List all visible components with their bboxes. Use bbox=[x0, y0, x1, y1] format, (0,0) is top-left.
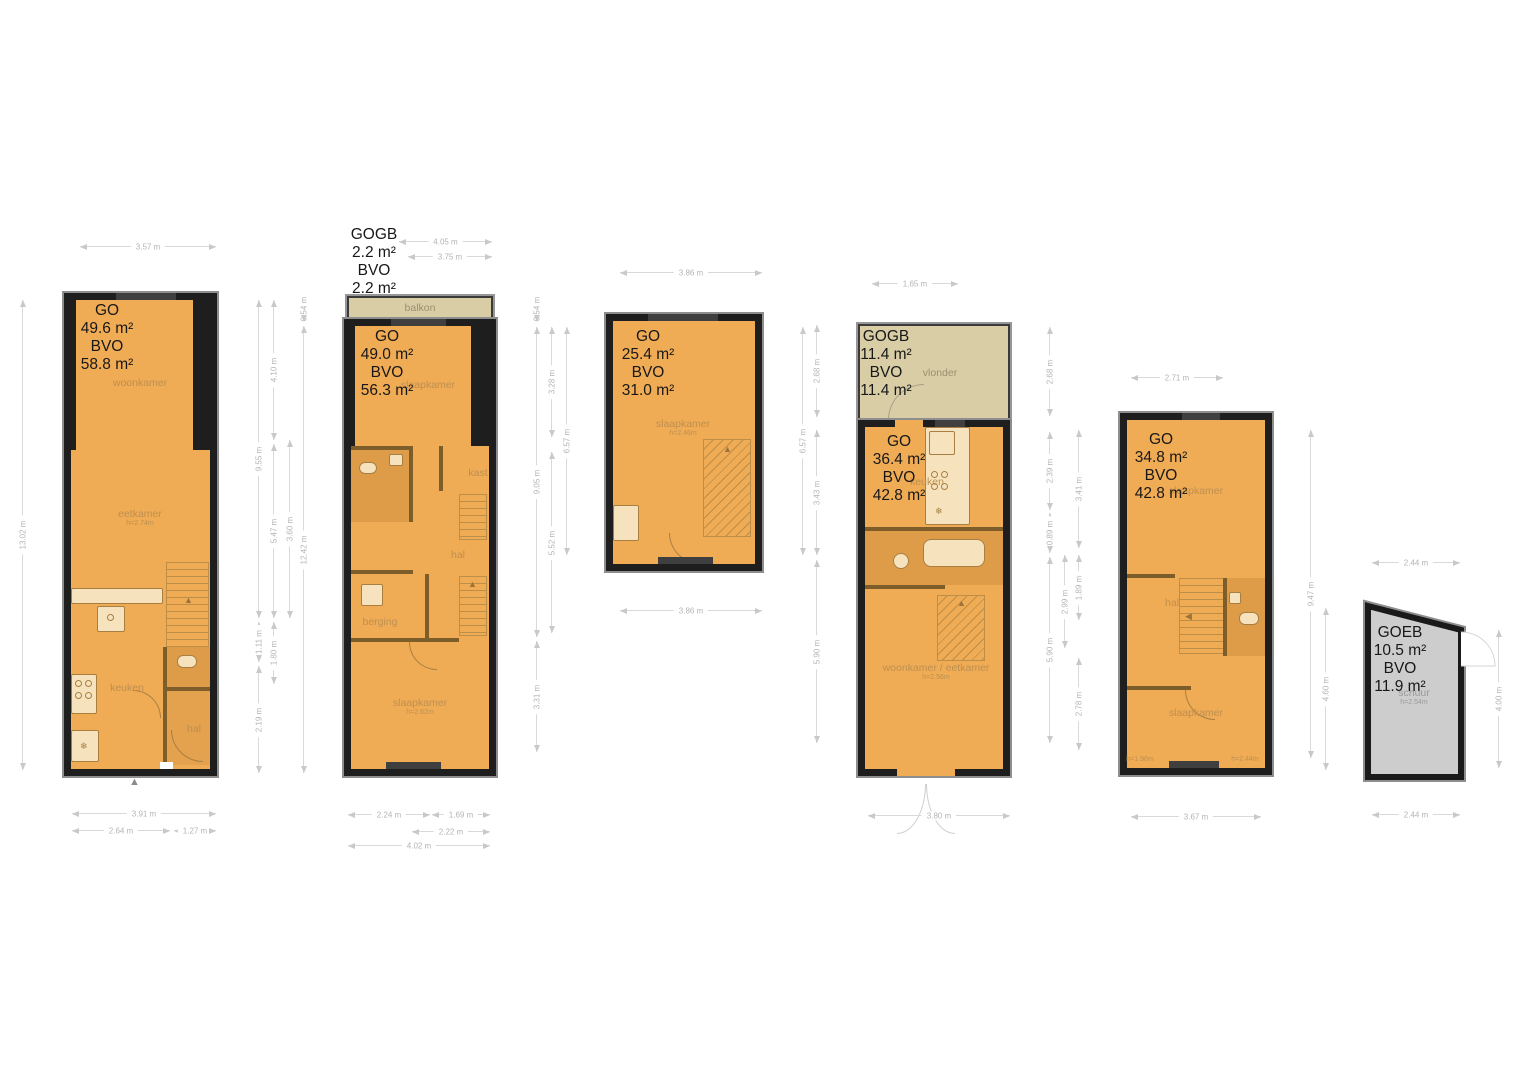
stairs-arrow-icon: ▲ bbox=[468, 580, 477, 589]
dimension: 2.44 m bbox=[1372, 562, 1460, 563]
dimension: 4.05 m bbox=[399, 241, 492, 242]
dimension: 2.19 m bbox=[258, 666, 259, 773]
dimension: 1.11 m bbox=[258, 622, 259, 662]
room-label-woonkamer-eetkamer: woonkamer / eetkamerh=2.56m bbox=[883, 662, 990, 682]
interior-wall bbox=[865, 585, 945, 589]
window bbox=[116, 293, 176, 300]
dimension: 2.44 m bbox=[1372, 814, 1460, 815]
room-label-slaapkamer: slaapkamerh=2.62m bbox=[393, 697, 447, 717]
french-door-arc bbox=[926, 784, 955, 834]
wall-inset bbox=[193, 300, 210, 450]
orientation-marker: ▲ bbox=[129, 777, 140, 788]
area-label-unit-2: GO49.0 m² BVO56.3 m² bbox=[352, 328, 422, 400]
dimension: 2.68 m bbox=[1049, 327, 1050, 416]
dimension: 0.89 m bbox=[1049, 513, 1050, 553]
toilet bbox=[359, 462, 377, 474]
room-label-hal: hal bbox=[1165, 597, 1179, 609]
dimension: 1.27 m bbox=[174, 830, 216, 831]
dimension: 1.65 m bbox=[872, 283, 958, 284]
washing-machine bbox=[361, 584, 383, 606]
dimension: 2.39 m bbox=[1049, 432, 1050, 510]
gogb-label-unit-2: GOGB2.2 m² BVO2.2 m² bbox=[345, 226, 403, 298]
dimension: 4.60 m bbox=[1325, 608, 1326, 770]
stairs-arrow-icon: ▲ bbox=[723, 445, 732, 454]
french-door-arc bbox=[897, 784, 926, 834]
dimension: 6.57 m bbox=[802, 327, 803, 555]
height-label: h=2.44m bbox=[1231, 756, 1258, 764]
window bbox=[935, 420, 965, 427]
dimension: 5.52 m bbox=[551, 452, 552, 633]
dimension: 2.71 m bbox=[1131, 377, 1223, 378]
window bbox=[1169, 761, 1219, 768]
washbasin bbox=[1229, 592, 1241, 604]
dimension: 1.80 m bbox=[273, 622, 274, 684]
interior-wall bbox=[351, 446, 413, 450]
dimension: 3.41 m bbox=[1078, 430, 1079, 548]
room-label-hal: hal bbox=[451, 549, 465, 561]
bathtub bbox=[923, 539, 985, 567]
area-label-unit-4: GO36.4 m² BVO42.8 m² bbox=[864, 433, 934, 505]
dimension: 3.43 m bbox=[816, 430, 817, 555]
dimension: 5.90 m bbox=[1049, 557, 1050, 743]
stairs-arrow-icon: ◀ bbox=[1185, 612, 1192, 621]
shed-door-arc bbox=[1461, 632, 1495, 666]
dimension: 13.02 m bbox=[22, 300, 23, 770]
dimension: 3.28 m bbox=[551, 327, 552, 437]
dimension: 12.42 m bbox=[303, 326, 304, 773]
kitchen-counter bbox=[71, 588, 163, 604]
dimension: 3.80 m bbox=[868, 815, 1010, 816]
window bbox=[386, 762, 441, 769]
interior-wall bbox=[409, 450, 413, 522]
interior-wall bbox=[1223, 578, 1227, 656]
interior-wall bbox=[1127, 686, 1191, 690]
wall-inset bbox=[471, 326, 489, 446]
dimension: 4.02 m bbox=[348, 845, 490, 846]
dimension: 2.22 m bbox=[412, 831, 490, 832]
dimension: 2.68 m bbox=[816, 325, 817, 417]
dimension: 3.86 m bbox=[620, 272, 762, 273]
dimension: 3.60 m bbox=[289, 440, 290, 618]
interior-wall bbox=[1127, 574, 1175, 578]
dimension: 2.64 m bbox=[72, 830, 170, 831]
washbasin bbox=[893, 553, 909, 569]
door-arc bbox=[133, 690, 161, 718]
door-opening bbox=[895, 420, 923, 427]
dimension: 3.57 m bbox=[80, 246, 216, 247]
dimension: 4.10 m bbox=[273, 300, 274, 440]
dimension: 3.31 m bbox=[536, 641, 537, 752]
door-arc bbox=[409, 642, 437, 670]
burner bbox=[85, 680, 92, 687]
interior-wall bbox=[351, 638, 459, 642]
room-label-slaapkamer: slaapkamer bbox=[1169, 707, 1223, 719]
dimension: 1.89 m bbox=[1078, 555, 1079, 620]
window bbox=[391, 319, 446, 326]
fridge-icon: ❄ bbox=[935, 507, 943, 516]
door-opening bbox=[160, 762, 173, 769]
dimension: 5.90 m bbox=[816, 560, 817, 743]
window bbox=[648, 314, 718, 321]
area-label-unit-5: GO34.8 m² BVO42.8 m² bbox=[1126, 431, 1196, 503]
dimension: 2.24 m bbox=[348, 814, 430, 815]
room-label-woonkamer: woonkamer bbox=[113, 377, 167, 389]
room-label-eetkamer: eetkamerh=2.74m bbox=[118, 508, 162, 528]
room-label-keuken: keuken bbox=[110, 682, 144, 694]
door-opening bbox=[897, 769, 955, 776]
dimension: 3.86 m bbox=[620, 610, 762, 611]
dimension: 0.54 m bbox=[303, 296, 304, 322]
interior-wall bbox=[439, 446, 443, 491]
room-label-slaapkamer: slaapkamerh=2.46m bbox=[656, 418, 710, 438]
dimension: 9.55 m bbox=[258, 300, 259, 618]
toilet bbox=[177, 655, 197, 668]
interior-wall bbox=[167, 687, 210, 691]
toilet bbox=[1239, 612, 1259, 625]
dimension: 9.47 m bbox=[1310, 430, 1311, 758]
room-label-berging: berging bbox=[362, 616, 397, 628]
sink-basin bbox=[107, 614, 114, 621]
burner bbox=[75, 680, 82, 687]
room-label-hal: hal bbox=[187, 723, 201, 735]
burner bbox=[75, 692, 82, 699]
dimension: 0.54 m bbox=[536, 296, 537, 322]
area-label-unit-1: GO49.6 m² BVO58.8 m² bbox=[72, 302, 142, 374]
interior-wall bbox=[865, 527, 1003, 531]
interior-wall bbox=[425, 574, 429, 640]
closet bbox=[613, 505, 639, 541]
dimension: 3.67 m bbox=[1131, 816, 1261, 817]
dimension: 2.78 m bbox=[1078, 658, 1079, 750]
room-label-vlonder: vlonder bbox=[923, 367, 957, 379]
dimension: 6.57 m bbox=[566, 327, 567, 555]
interior-wall bbox=[351, 570, 413, 574]
dimension: 3.75 m bbox=[408, 256, 492, 257]
interior-wall bbox=[163, 647, 167, 765]
area-label-unit-3: GO25.4 m² BVO31.0 m² bbox=[613, 328, 683, 400]
dimension: 3.91 m bbox=[72, 813, 216, 814]
floorplan-sheet: ▲ ❄ ▲ ▲ bbox=[0, 0, 1527, 1080]
dimension: 2.99 m bbox=[1064, 555, 1065, 648]
window bbox=[1182, 413, 1220, 420]
stairs bbox=[459, 494, 487, 540]
stairs-arrow-icon: ▲ bbox=[957, 599, 966, 608]
room-label-balkon: balkon bbox=[405, 302, 436, 314]
dimension: 1.69 m bbox=[432, 814, 490, 815]
window bbox=[658, 557, 713, 564]
height-label: h=1.96m bbox=[1126, 756, 1153, 764]
stairs-arrow-icon: ▲ bbox=[184, 596, 193, 605]
area-label-unit-6: GOEB10.5 m² BVO11.9 m² bbox=[1365, 624, 1435, 696]
fridge-icon: ❄ bbox=[80, 742, 88, 751]
dimension: 5.47 m bbox=[273, 444, 274, 618]
burner bbox=[85, 692, 92, 699]
gogb-label-unit-4: GOGB11.4 m² BVO11.4 m² bbox=[851, 328, 921, 400]
washbasin bbox=[389, 454, 403, 466]
room-label-kast: kast bbox=[468, 467, 487, 479]
dimension: 9.05 m bbox=[536, 327, 537, 637]
